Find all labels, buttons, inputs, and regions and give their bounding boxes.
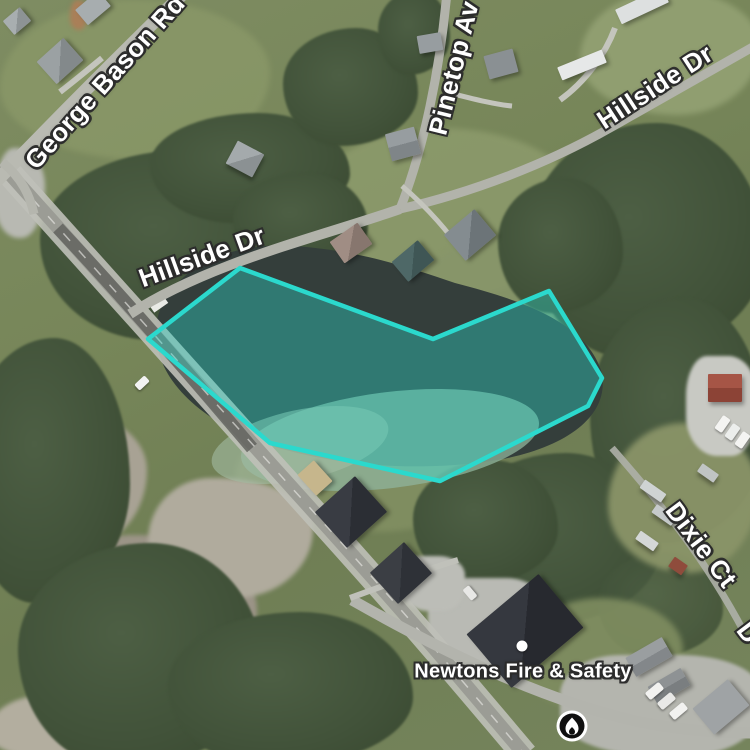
- poi-marker-fire-station[interactable]: [556, 710, 588, 742]
- fire-icon: [556, 710, 588, 742]
- highlighted-parcel-polygon[interactable]: [148, 268, 602, 481]
- poi-anchor-dot: [517, 641, 528, 652]
- satellite-map[interactable]: George Bason Rd Pinetop Av Hillside Dr H…: [0, 0, 750, 750]
- poi-label-newtons-fire-safety: Newtons Fire & Safety: [414, 661, 631, 684]
